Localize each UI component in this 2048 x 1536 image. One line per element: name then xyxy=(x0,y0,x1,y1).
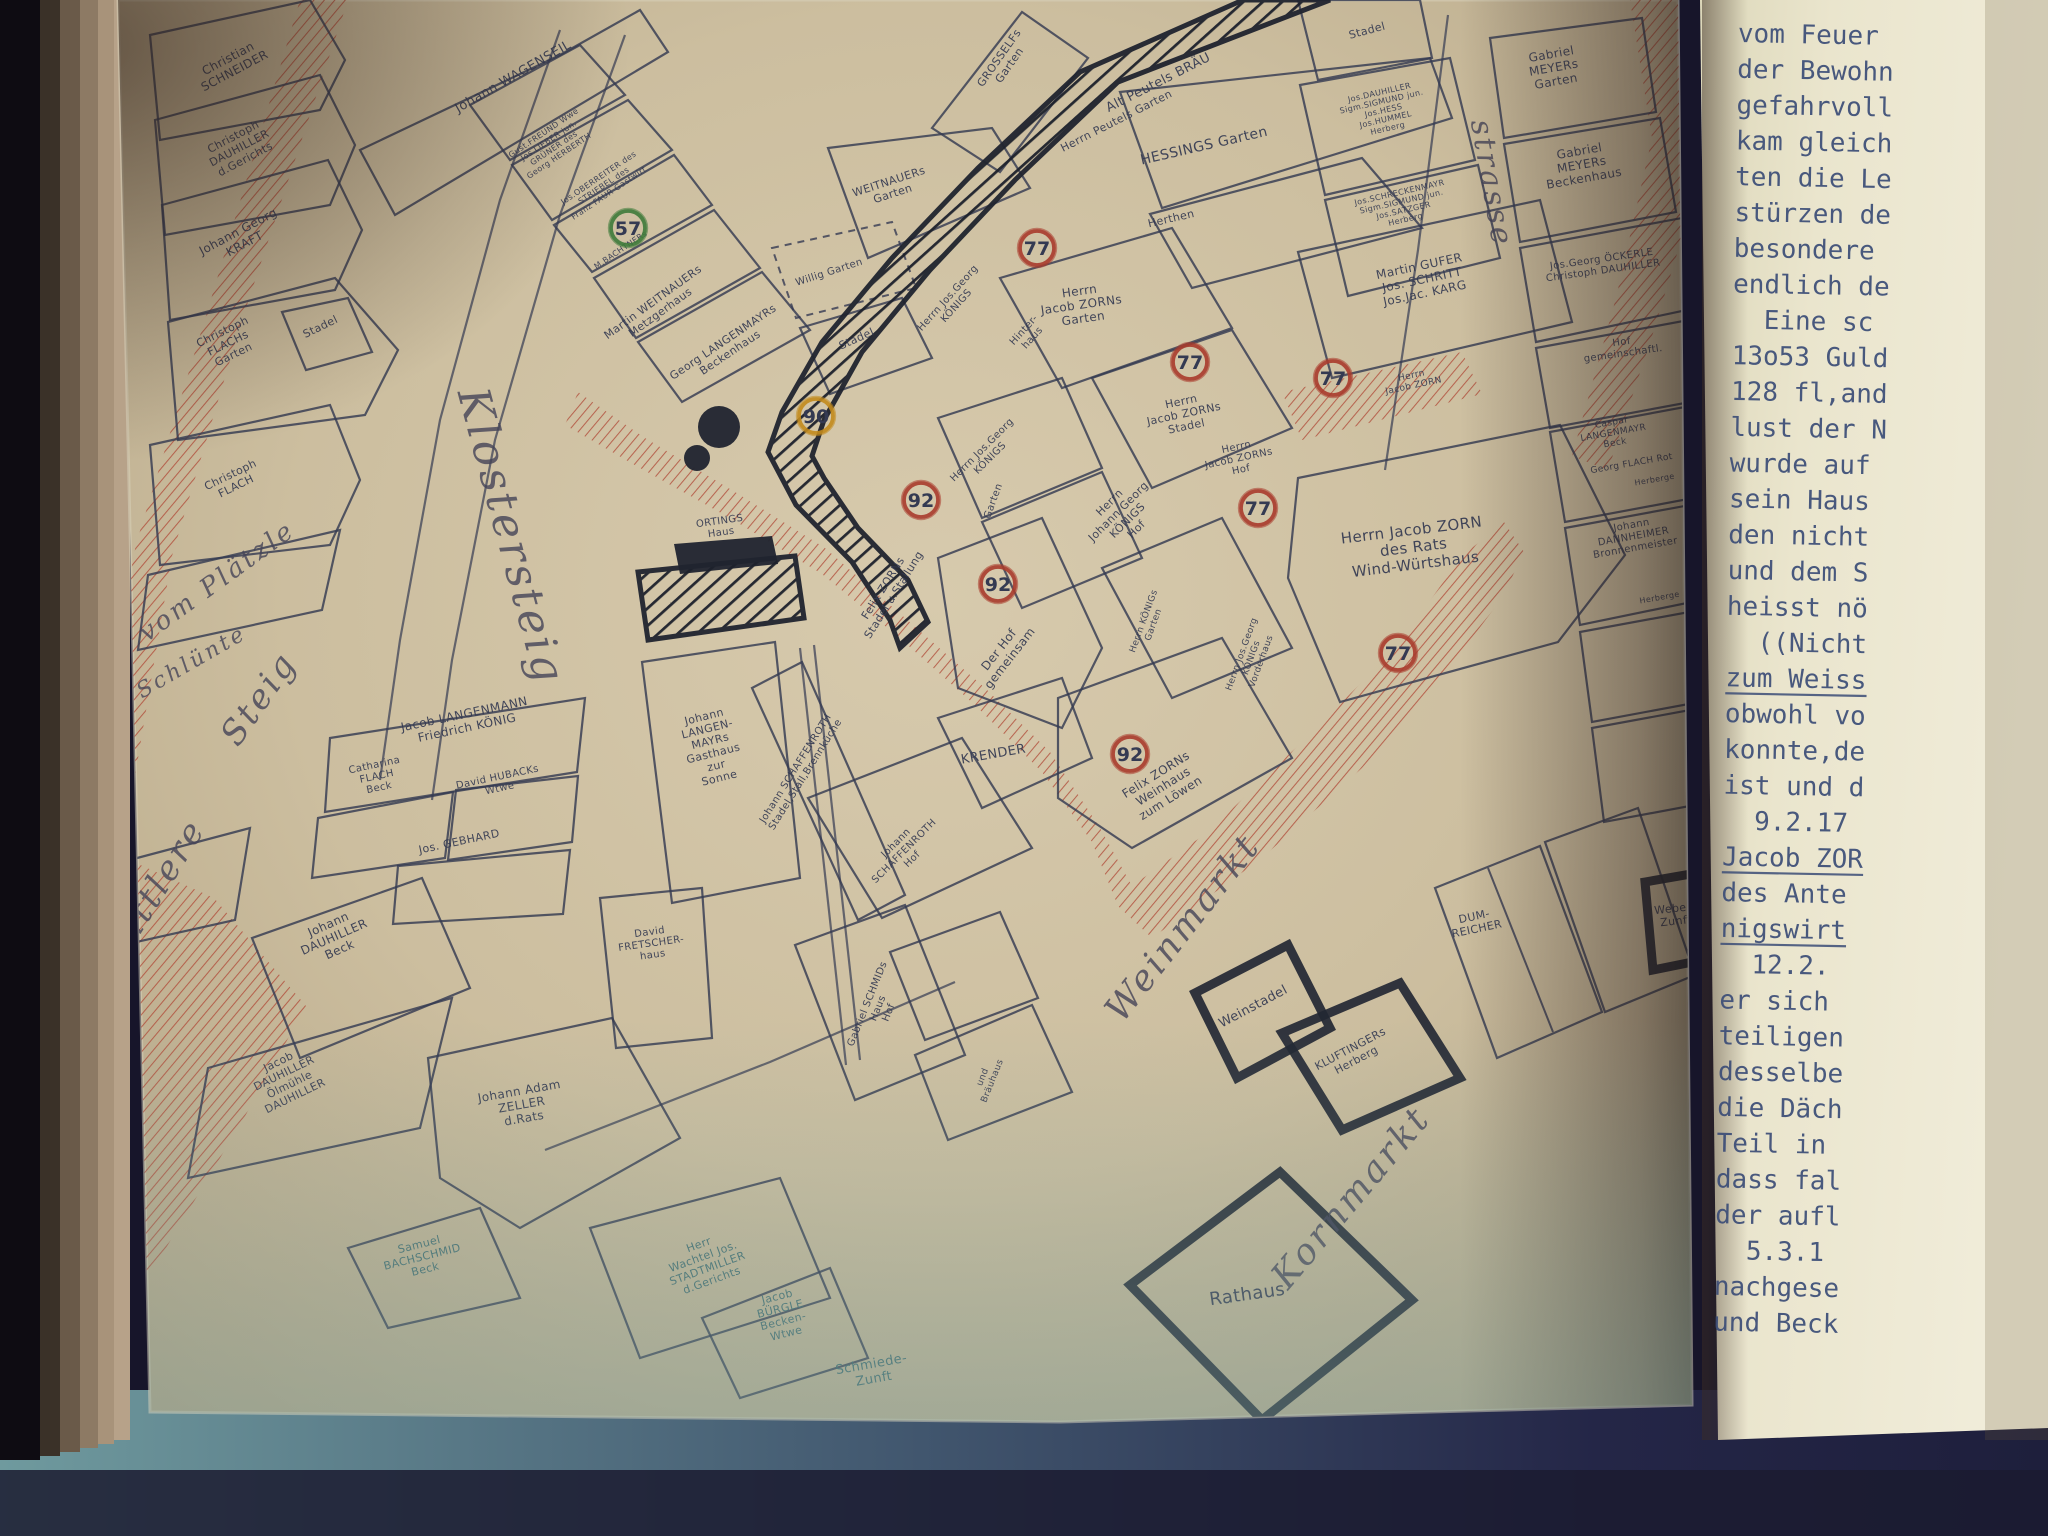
marker-number: 92 xyxy=(1117,744,1143,766)
typed-text-line: er sich xyxy=(1719,985,1829,1017)
typed-text-line: obwohl vo xyxy=(1725,699,1866,732)
typed-text-line: den nicht xyxy=(1728,520,1869,553)
typed-text-line: lust der N xyxy=(1730,413,1887,446)
typed-text-line: ((Nicht xyxy=(1726,627,1867,660)
typed-text-line: Teil in xyxy=(1716,1129,1826,1161)
typed-text-line: teiligen xyxy=(1718,1021,1844,1053)
typed-text-line: zum Weiss xyxy=(1725,663,1866,696)
typed-text-line: 13o53 Guld xyxy=(1731,341,1888,374)
typed-text-line: stürzen de xyxy=(1734,198,1891,231)
typed-text-line: desselbe xyxy=(1718,1057,1844,1089)
typed-text-line: sein Haus xyxy=(1729,484,1870,517)
typed-text-line: heisst nö xyxy=(1727,592,1868,625)
right-page-curl xyxy=(1985,0,2048,1440)
typed-text-line: Eine sc xyxy=(1732,305,1873,338)
typed-text-line: 12.2. xyxy=(1720,950,1830,982)
marker-number: 77 xyxy=(1177,352,1203,374)
desk-shadow xyxy=(0,1470,2048,1536)
typed-text-line: endlich de xyxy=(1733,270,1890,303)
typed-text-line: besondere xyxy=(1734,234,1875,267)
typed-text-line: 9.2.17 xyxy=(1723,806,1849,838)
book-spine-left xyxy=(0,0,130,1460)
typed-text-line: der Bewohn xyxy=(1737,55,1894,88)
typed-text-line: die Däch xyxy=(1717,1093,1843,1125)
typed-text-line: und Beck xyxy=(1713,1308,1839,1340)
typed-text-line: wurde auf xyxy=(1729,449,1870,482)
marker-number: 77 xyxy=(1320,368,1346,390)
typed-text-line: der aufl xyxy=(1715,1200,1841,1232)
typed-text-line: 128 fl,and xyxy=(1731,377,1888,410)
typed-text-line: ist und d xyxy=(1723,771,1864,804)
typed-text-line: und dem S xyxy=(1727,556,1868,589)
typed-text-line: nigswirt xyxy=(1720,914,1846,946)
marker-number: 77 xyxy=(1024,238,1050,260)
typed-text-line: dass fal xyxy=(1716,1164,1842,1196)
typed-text-line: konnte,de xyxy=(1724,735,1865,768)
typed-text-line: nachgese xyxy=(1714,1272,1840,1304)
marker-number: 77 xyxy=(1385,643,1411,665)
town-map-scene: ChristianSCHNEIDERChristophDAUHILLERd.Ge… xyxy=(0,0,2048,1536)
book-photo: ChristianSCHNEIDERChristophDAUHILLERd.Ge… xyxy=(0,0,2048,1536)
marker-number: 77 xyxy=(1245,498,1271,520)
typed-text-line: des Ante xyxy=(1721,878,1847,910)
typed-text-line: kam gleich xyxy=(1736,126,1893,159)
typed-text-line: 5.3.1 xyxy=(1714,1236,1824,1268)
typed-text-line: Jacob ZOR xyxy=(1722,842,1864,875)
typed-text-line: gefahrvoll xyxy=(1736,91,1893,124)
typed-text-line: vom Feuer xyxy=(1738,19,1879,52)
typed-text-line: ten die Le xyxy=(1735,162,1892,195)
